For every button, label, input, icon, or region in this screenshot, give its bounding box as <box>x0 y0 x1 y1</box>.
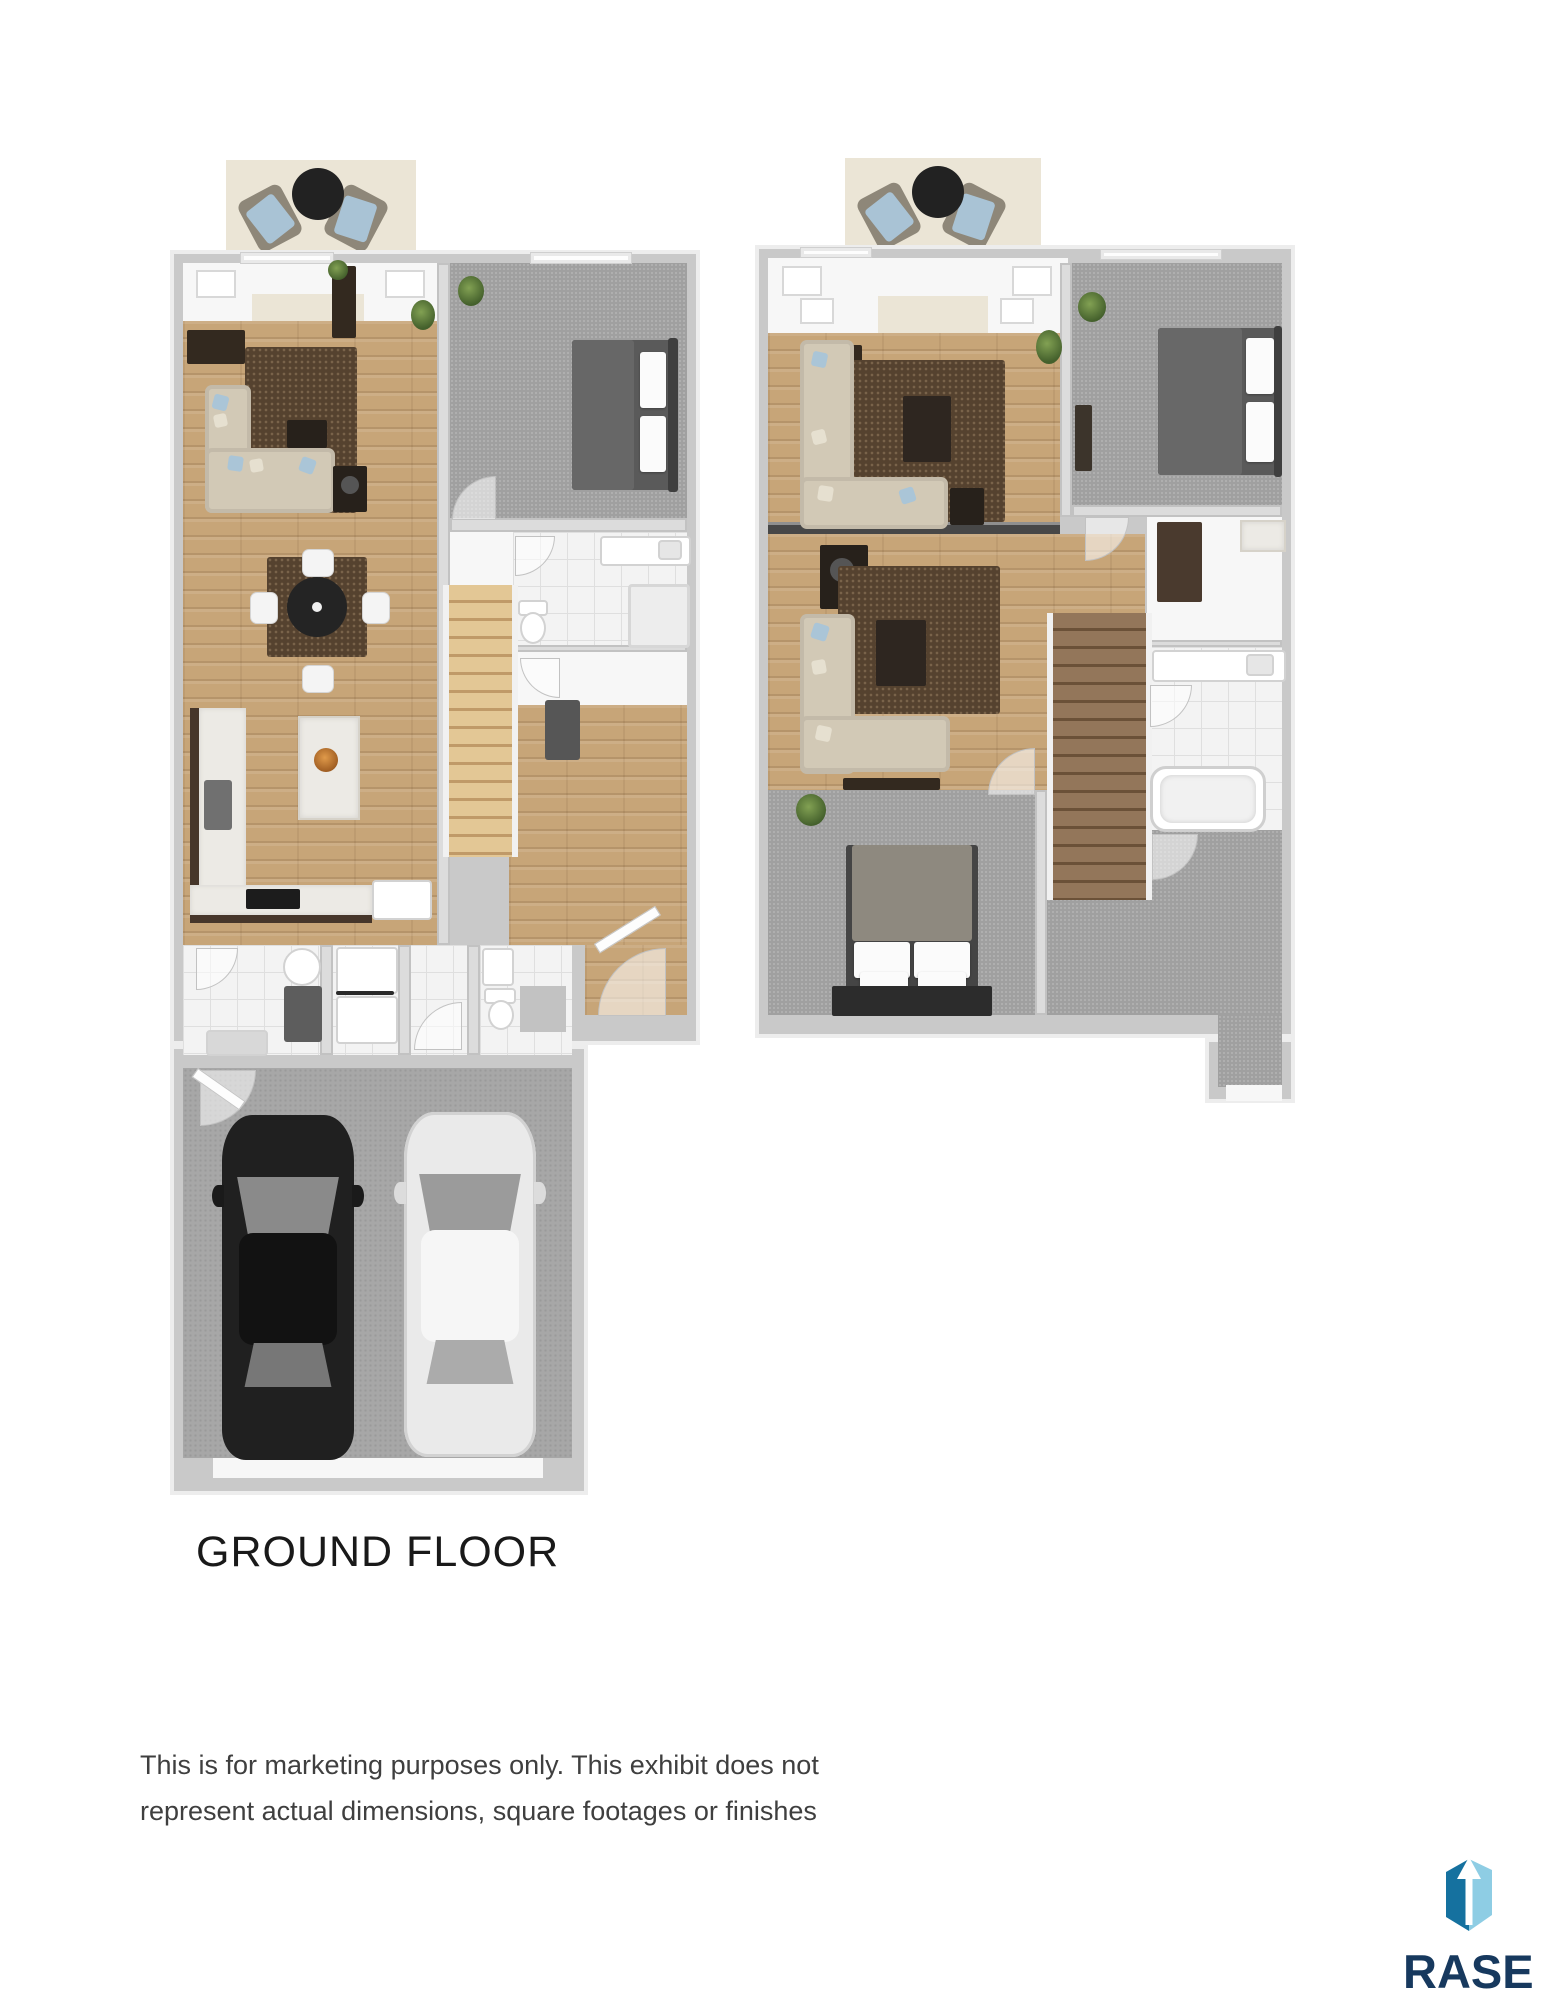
uf-bed-bench <box>832 986 992 1016</box>
gf-kitchen-cabinet <box>372 880 432 920</box>
gf-tv-console <box>187 330 245 364</box>
gf-stairs <box>443 585 518 857</box>
uf-closet-shelving <box>1157 522 1202 602</box>
gf-wall <box>398 945 411 1055</box>
car-mirror <box>394 1182 406 1204</box>
gf-table-decor <box>312 602 322 612</box>
disclaimer-line-2: represent actual dimensions, square foot… <box>140 1788 940 1834</box>
car-roof <box>421 1230 519 1342</box>
uf-headboard <box>1274 326 1282 477</box>
gf-fruit-bowl <box>314 748 338 772</box>
gf-wall <box>450 518 687 532</box>
uf-window <box>1100 249 1222 260</box>
throw-pillow <box>249 458 264 473</box>
uf-wall <box>1147 640 1282 647</box>
uf-sofa <box>800 716 950 772</box>
gf-window <box>240 252 334 264</box>
uf-counter <box>1240 520 1286 552</box>
gf-dryer <box>336 996 398 1044</box>
uf-master-bed-duvet <box>852 845 972 941</box>
gf-dining-chair <box>250 592 278 624</box>
gf-black-car <box>222 1115 354 1460</box>
car-mirror <box>212 1185 224 1207</box>
gf-powder-sink <box>482 948 514 986</box>
throw-pillow <box>815 725 833 743</box>
rase-logo: RASE <box>1400 1848 1545 1998</box>
throw-pillow <box>817 485 834 502</box>
gf-sofa <box>205 448 335 513</box>
bed-pillow <box>640 352 666 408</box>
uf-skylight <box>1012 266 1052 296</box>
uf-bed-duvet <box>1158 328 1242 475</box>
gf-headboard <box>668 338 678 492</box>
bed-pillow <box>640 416 666 472</box>
gf-dining-chair <box>302 549 334 577</box>
throw-pillow <box>227 455 244 472</box>
uf-window <box>800 247 872 258</box>
bed-pillow <box>1246 402 1274 462</box>
uf-speaker <box>950 488 984 525</box>
ground-floor-label: GROUND FLOOR <box>196 1528 559 1577</box>
uf-walk-in-closet-floor <box>1218 1015 1282 1087</box>
gf-skylight <box>196 270 236 298</box>
uf-plant <box>1036 330 1062 364</box>
car-rear-window <box>242 1343 334 1387</box>
gf-laundry-hamper <box>283 948 321 986</box>
gf-patio-table <box>292 168 344 220</box>
gf-garage-door-threshold <box>213 1458 543 1478</box>
gf-plant <box>328 260 348 280</box>
gf-window <box>530 252 632 264</box>
uf-coffee-table <box>876 620 926 686</box>
gf-dining-chair <box>362 592 390 624</box>
car-windshield <box>416 1174 524 1232</box>
uf-wall <box>1035 790 1047 1015</box>
gf-water-heater <box>284 986 322 1042</box>
uf-door-mat <box>878 296 988 333</box>
gf-bath-hall <box>450 532 513 585</box>
rase-wordmark: RASE <box>1403 1944 1534 1999</box>
gf-plant <box>411 300 435 330</box>
gf-utility-sink <box>206 1030 268 1056</box>
gf-shoe-cabinet <box>545 700 580 760</box>
disclaimer-text: This is for marketing purposes only. Thi… <box>140 1742 940 1834</box>
car-rear-window <box>424 1340 516 1384</box>
gf-plant <box>458 276 484 306</box>
uf-media-console <box>843 778 940 790</box>
car-mirror <box>352 1185 364 1207</box>
car-roof <box>239 1233 337 1345</box>
uf-plant <box>1078 292 1106 322</box>
throw-pillow <box>213 413 228 428</box>
uf-wall <box>1060 263 1072 517</box>
gf-white-car <box>404 1112 536 1457</box>
gf-shower <box>628 584 690 648</box>
gf-kitchen-sink <box>204 780 232 830</box>
car-mirror <box>534 1182 546 1204</box>
gf-cooktop <box>246 889 300 909</box>
uf-door-threshold <box>1226 1085 1282 1101</box>
uf-stairs <box>1047 613 1152 900</box>
uf-plant <box>796 794 826 826</box>
gf-entry-floor <box>509 705 687 945</box>
gf-bath-mat <box>520 986 566 1032</box>
throw-pillow <box>811 351 829 369</box>
bathtub-basin <box>1160 775 1256 823</box>
gf-toilet-bowl <box>488 1000 514 1030</box>
bed-pillow <box>1246 338 1274 394</box>
car-windshield <box>234 1177 342 1235</box>
uf-wall <box>1072 505 1282 517</box>
uf-patio-table <box>912 166 964 218</box>
throw-pillow <box>811 659 827 675</box>
gf-wall <box>467 945 480 1055</box>
uf-skylight <box>800 298 834 324</box>
gf-bed-duvet <box>572 340 634 490</box>
rase-building-arrow-up-icon <box>1440 1850 1498 1936</box>
uf-coffee-table <box>903 396 951 462</box>
uf-skylight <box>1000 298 1034 324</box>
gf-lamp <box>341 476 359 494</box>
gf-washer <box>336 947 398 994</box>
uf-sink-basin <box>1246 654 1274 676</box>
gf-sink-basin <box>658 540 682 560</box>
uf-bathtub <box>1150 766 1266 832</box>
gf-dining-chair <box>302 665 334 693</box>
uf-skylight <box>782 266 822 296</box>
floor-plan-page: GROUND FLOOR This is for marketing purpo… <box>0 0 1545 2000</box>
disclaimer-line-1: This is for marketing purposes only. Thi… <box>140 1742 940 1788</box>
gf-toilet-bowl <box>520 612 546 644</box>
gf-coffee-table <box>287 420 327 448</box>
gf-appliance-gap <box>336 991 394 995</box>
gf-skylight <box>385 270 425 298</box>
uf-dresser <box>1075 405 1092 471</box>
